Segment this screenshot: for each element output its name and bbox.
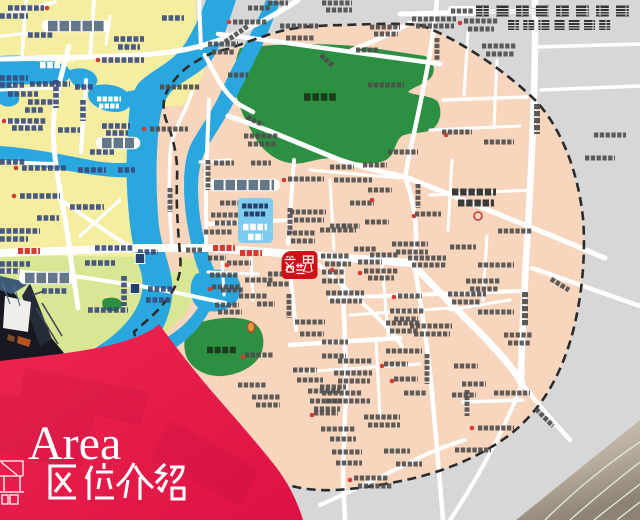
svg-text:Area: Area xyxy=(28,417,121,470)
